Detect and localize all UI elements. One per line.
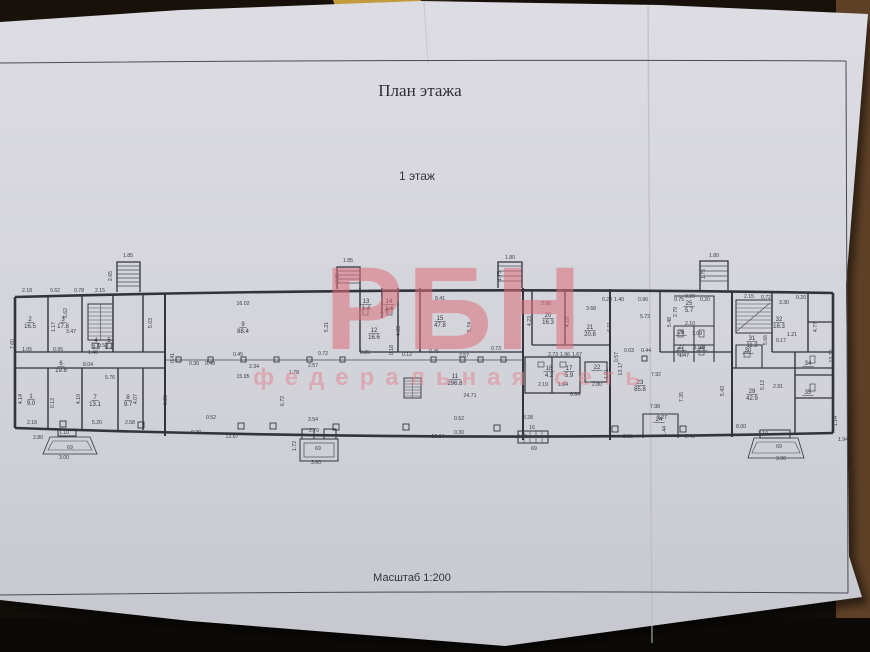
- room-area-label: 16.5: [24, 324, 36, 330]
- room-number: 28: [699, 345, 706, 351]
- dimension-label: 0.12: [760, 380, 766, 390]
- dimension-label: 0.72: [761, 295, 771, 301]
- dimension-label: 2.18: [27, 420, 37, 426]
- room-area-label: 2.1: [105, 345, 114, 351]
- dimension-label: 4.77: [813, 322, 819, 332]
- dimension-label: 5.20: [92, 420, 102, 426]
- dimension-label: 0.20: [602, 297, 612, 303]
- room-area-label: 20.8: [584, 332, 596, 338]
- dimension-label: 0.96: [638, 297, 648, 303]
- room-number: 24: [656, 417, 663, 423]
- dimension-label: 2.40: [685, 434, 695, 440]
- room-area-label: 88.4: [237, 329, 249, 335]
- room-number: 35: [805, 390, 812, 396]
- room-area-label: 5.7: [685, 308, 694, 314]
- dimension-label: 1.09: [692, 331, 702, 337]
- room-number: 27: [678, 345, 685, 351]
- dimension-label: 5.73: [640, 314, 650, 320]
- dimension-label: 0.44: [641, 348, 651, 354]
- dimension-label: 0.52: [206, 415, 216, 421]
- dimension-label: 6.90: [163, 395, 169, 405]
- room-area-label: 17.8: [57, 324, 69, 330]
- dimension-label: 7.98: [650, 404, 660, 410]
- room-area-label: 19.8: [55, 368, 67, 374]
- dimension-label: 6.11: [607, 322, 613, 332]
- dimension-label: 3.00: [59, 455, 69, 461]
- dimension-label: 2.80: [33, 435, 43, 441]
- dimension-label: 0.17: [776, 338, 786, 344]
- photo-of-floor-plan-document: План этажа 1 этаж Масштаб 1:200: [0, 0, 870, 652]
- room-number: 26: [678, 330, 685, 336]
- dimension-label: 1.94: [838, 437, 848, 443]
- scale-label: Масштаб 1:200: [373, 572, 451, 584]
- dimension-label: 69: [776, 444, 782, 450]
- dimension-label: 69: [315, 446, 321, 452]
- dimension-label: 16: [529, 425, 535, 431]
- dimension-label: 3.54: [308, 417, 318, 423]
- dimension-label: 0.41: [170, 353, 176, 363]
- dimension-label: 0.20: [700, 297, 710, 303]
- dimension-label: 13.67: [226, 434, 239, 440]
- dimension-label: 3.68: [586, 306, 596, 312]
- room-area-label: 42.9: [746, 396, 758, 402]
- dimension-label: 1.10: [59, 430, 69, 436]
- dimension-label: 1.10: [758, 431, 768, 437]
- dimension-label: 0.49: [205, 361, 215, 367]
- room-area-label: 3.5: [92, 345, 101, 351]
- dimension-label: 1.44: [662, 426, 668, 436]
- dimension-label: 7.92: [651, 372, 661, 378]
- dimension-label: 3.30: [779, 300, 789, 306]
- dimension-label: 1.47: [679, 353, 689, 359]
- dimension-label: 0.75: [674, 297, 684, 303]
- room-number: 31: [749, 336, 756, 342]
- dimension-label: 2.53: [623, 434, 633, 440]
- dimension-label: 0.45: [233, 352, 243, 358]
- room-area-label: 11.3: [746, 343, 758, 349]
- dimension-label: 5.48: [667, 317, 673, 327]
- dimension-label: 2.58: [125, 420, 135, 426]
- dimension-label: 1.21: [787, 332, 797, 338]
- dimension-label: 0.20: [191, 430, 201, 436]
- dimension-label: 24.71: [464, 393, 477, 399]
- dimension-label: 0.20: [796, 295, 806, 301]
- dimension-label: 1.05: [22, 347, 32, 353]
- dimension-label: 0.62: [50, 288, 60, 294]
- dimension-label: 8.00: [736, 424, 746, 430]
- room-number: 29: [749, 389, 756, 395]
- room-number: 34: [805, 361, 812, 367]
- dimension-label: 0.57: [614, 352, 620, 362]
- dimension-label: 69: [67, 445, 73, 451]
- watermark-logo: РБН: [325, 243, 586, 375]
- dimension-label: 5.76: [105, 375, 115, 381]
- dimension-label: 1.75: [701, 269, 707, 279]
- dimension-label: 1.72: [292, 441, 298, 451]
- watermark-subtitle: федеральная сеть: [253, 364, 651, 391]
- dimension-label: 69: [531, 446, 537, 452]
- dimension-label: 4.19: [76, 394, 82, 404]
- dimension-label: 0.78: [74, 288, 84, 294]
- dimension-label: 5.66: [763, 335, 769, 345]
- dimension-label: 15.95: [237, 374, 250, 380]
- room-area-label: 9.0: [27, 401, 36, 407]
- room-number: 32: [776, 317, 783, 323]
- room-number: 21: [587, 325, 594, 331]
- dimension-label: 2.72: [517, 434, 527, 440]
- dimension-label: 0.52: [454, 416, 464, 422]
- dimension-label: 6.64: [570, 392, 580, 398]
- dimension-label: 1.40: [614, 297, 624, 303]
- dimension-label: 2.70: [309, 428, 319, 434]
- room-area-label: 9.7: [124, 402, 133, 408]
- dimension-label: 2.15: [744, 294, 754, 300]
- dimension-label: 2.79: [673, 307, 679, 317]
- dimension-label: 1.14: [833, 416, 839, 426]
- dimension-label: 0.03: [624, 348, 634, 354]
- dimension-label: 12.70: [829, 349, 835, 362]
- dimension-label: 7.35: [679, 392, 685, 402]
- dimension-label: 0.20: [685, 294, 695, 300]
- dimension-label: 16.02: [237, 301, 250, 307]
- dimension-label: 1.85: [123, 253, 133, 259]
- dimension-label: 2.91: [773, 384, 783, 390]
- dimension-label: 0.30: [454, 430, 464, 436]
- dimension-label: 4.07: [133, 394, 139, 404]
- dimension-label: 0.30: [189, 361, 199, 367]
- dimension-label: 1.80: [709, 253, 719, 259]
- page-title: План этажа: [378, 81, 462, 100]
- dimension-label: 3.00: [776, 456, 786, 462]
- dimension-label: 4.14: [18, 394, 24, 404]
- dimension-label: 0.13: [50, 398, 56, 408]
- dimension-label: 3.60: [311, 460, 321, 466]
- dimension-label: 6.72: [280, 396, 286, 406]
- dimension-label: 8.04: [83, 362, 93, 368]
- dimension-label: 2.65: [108, 271, 114, 281]
- dimension-label: 7.60: [10, 339, 16, 349]
- dimension-label: 2.15: [95, 288, 105, 294]
- dimension-label: 5.43: [720, 386, 726, 396]
- dimension-label: 2.18: [22, 288, 32, 294]
- dimension-label: 2.10: [685, 321, 695, 327]
- dimension-label: 5.03: [148, 318, 154, 328]
- floor-label: 1 этаж: [399, 169, 435, 183]
- floor-plan-photo: План этажа 1 этаж Масштаб 1:200: [0, 0, 870, 652]
- dimension-label: 3.28: [523, 415, 533, 421]
- room-area-label: 13.1: [89, 402, 101, 408]
- dimension-label: 18.84: [432, 434, 445, 440]
- dimension-label: 1.17: [51, 322, 57, 332]
- room-area-label: 18.3: [773, 324, 785, 330]
- dimension-label: 0.95: [53, 347, 63, 353]
- room-number: 25: [686, 301, 693, 307]
